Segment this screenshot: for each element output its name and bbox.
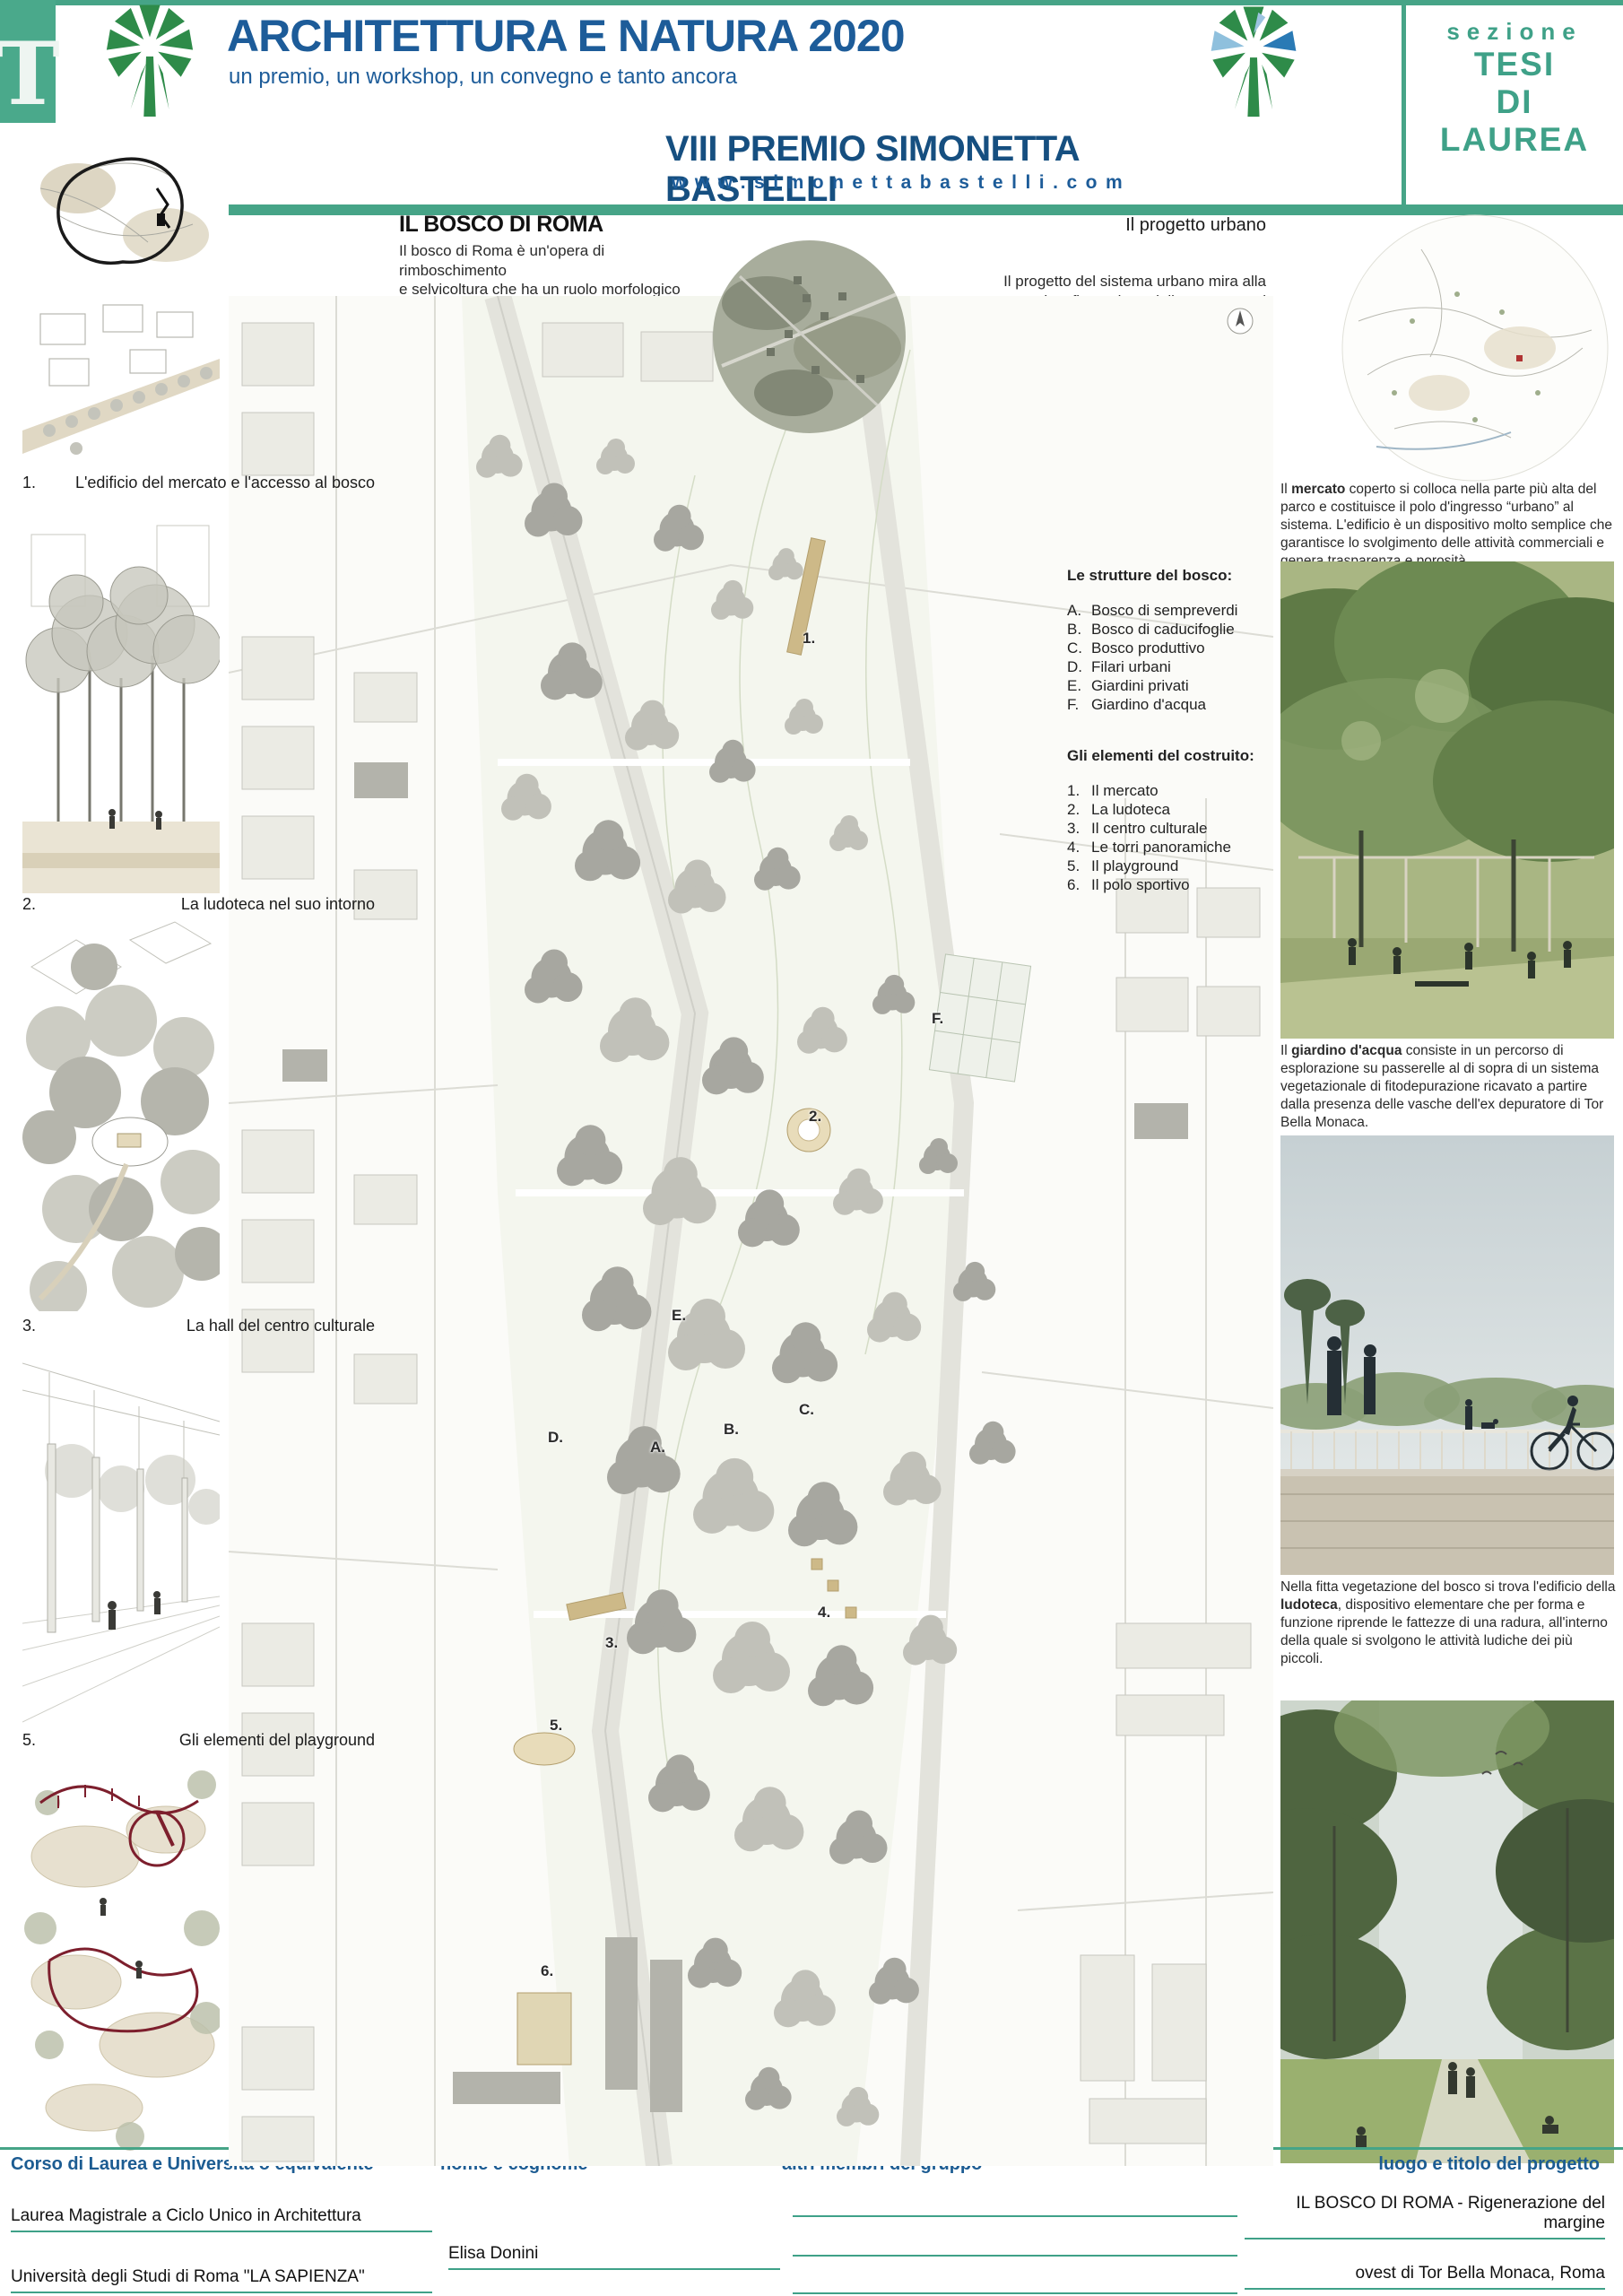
footer-project-line1: IL BOSCO DI ROMA - Rigenerazione del mar… xyxy=(1245,2194,1605,2239)
section-line-2: DI xyxy=(1406,83,1623,121)
legend-item: A.Bosco di sempreverdi xyxy=(1067,601,1273,620)
ludoteca-caption: Nella fitta vegetazione del bosco si tro… xyxy=(1280,1578,1616,1668)
plan-marker-E: E. xyxy=(672,1307,686,1325)
rome-map-sketch xyxy=(22,135,220,289)
giardino-render xyxy=(1280,1135,1614,1575)
bosco-render xyxy=(1280,1700,1614,2163)
legend-item: 6.Il polo sportivo xyxy=(1067,875,1273,894)
plan-marker-A: A. xyxy=(650,1439,665,1457)
event-subtitle: un premio, un workshop, un convegno e ta… xyxy=(229,65,1036,90)
section-label: sezione xyxy=(1406,18,1623,46)
section-box: sezione TESI DI LAUREA xyxy=(1402,0,1623,204)
mercato-caption: Il mercato coperto si colloca nella part… xyxy=(1280,481,1616,570)
aerial-photo-inset xyxy=(713,240,906,433)
legend-item: 4.Le torri panoramiche xyxy=(1067,838,1273,857)
legend-item: F.Giardino d'acqua xyxy=(1067,695,1273,714)
website-link: www.simonettabastelli.com xyxy=(672,172,1131,194)
legend-item: 3.Il centro culturale xyxy=(1067,819,1273,838)
legend-item: D.Filari urbani xyxy=(1067,657,1273,676)
panel-title: Gli elementi del playground xyxy=(179,1731,375,1754)
plan-marker-2: 2. xyxy=(809,1108,821,1126)
panel-number: 5. xyxy=(22,1731,36,1754)
panel-label-2: 2. La ludoteca nel suo intorno xyxy=(22,895,375,918)
plan-marker-D: D. xyxy=(548,1429,563,1447)
playground-illustration xyxy=(22,1749,220,2163)
ludoteca-illustration xyxy=(22,913,220,1311)
panel-title: La hall del centro culturale xyxy=(187,1317,375,1340)
panel-label-1: 1. L'edificio del mercato e l'accesso al… xyxy=(22,474,375,497)
footer-members-blank-line xyxy=(793,2292,1237,2294)
plan-marker-C: C. xyxy=(799,1401,814,1419)
panel-number: 1. xyxy=(22,474,36,497)
market-access-illustration xyxy=(22,499,220,893)
top-rule xyxy=(0,0,1623,5)
footer-university-value: Università degli Studi di Roma "LA SAPIE… xyxy=(11,2267,432,2293)
footer-course-value: Laurea Magistrale a Ciclo Unico in Archi… xyxy=(11,2206,432,2232)
legend-costruito-title: Gli elementi del costruito: xyxy=(1067,747,1273,765)
plan-marker-1: 1. xyxy=(803,630,815,648)
panel-label-3: 3. La hall del centro culturale xyxy=(22,1317,375,1340)
plan-marker-5: 5. xyxy=(550,1717,562,1735)
section-tab-letter: T xyxy=(0,31,60,117)
legend-bosco-title: Le strutture del bosco: xyxy=(1067,567,1273,585)
plan-marker-3: 3. xyxy=(605,1634,618,1652)
panel-title: La ludoteca nel suo intorno xyxy=(181,895,375,918)
legend-item: E.Giardini privati xyxy=(1067,676,1273,695)
urban-fabric-sketch xyxy=(22,296,220,468)
intro-title: IL BOSCO DI ROMA xyxy=(399,212,688,238)
tree-mosaic-icon xyxy=(82,4,217,124)
plan-marker-6: 6. xyxy=(541,1962,553,1980)
panel-number: 3. xyxy=(22,1317,36,1340)
thesis-poster: T ARCHITETTURA E NATURA 2020 un premio, … xyxy=(0,0,1623,2296)
panel-label-5: 5. Gli elementi del playground xyxy=(22,1731,375,1754)
section-line-1: TESI xyxy=(1406,46,1623,83)
footer-header-project: luogo e titolo del progetto xyxy=(1378,2154,1600,2175)
footer-project-line2: ovest di Tor Bella Monaca, Roma xyxy=(1245,2264,1605,2290)
footer-name-value: Elisa Donini xyxy=(448,2244,780,2270)
legend-item: C.Bosco produttivo xyxy=(1067,639,1273,657)
legend-item: 5.Il playground xyxy=(1067,857,1273,875)
plan-marker-4: 4. xyxy=(818,1604,830,1622)
panel-title: L'edificio del mercato e l'accesso al bo… xyxy=(75,474,375,497)
plan-marker-F: F. xyxy=(932,1010,943,1028)
footer-members-blank-line xyxy=(793,2255,1237,2257)
mercato-render xyxy=(1280,561,1614,1039)
plan-marker-B: B. xyxy=(724,1421,739,1439)
footer-members-blank-line xyxy=(793,2215,1237,2217)
tree-logo2-icon xyxy=(1194,4,1313,126)
tree-logo-icon xyxy=(82,4,217,124)
panel-number: 2. xyxy=(22,895,36,918)
plan-legend: Le strutture del bosco: A.Bosco di sempr… xyxy=(1067,567,1273,894)
legend-item: 2.La ludoteca xyxy=(1067,800,1273,819)
urban-title: Il progetto urbano xyxy=(976,215,1266,236)
section-tab: T xyxy=(0,0,56,123)
territorial-map-inset xyxy=(1341,213,1610,483)
legend-item: 1.Il mercato xyxy=(1067,781,1273,800)
tree-mosaic-blue-icon xyxy=(1194,4,1313,126)
prize-title: VIII PREMIO SIMONETTA BASTELLI xyxy=(665,129,1203,210)
hall-illustration xyxy=(22,1336,220,1729)
giardino-caption: Il giardino d'acqua consiste in un perco… xyxy=(1280,1042,1616,1132)
event-title: ARCHITETTURA E NATURA 2020 xyxy=(227,13,1034,60)
legend-item: B.Bosco di caducifoglie xyxy=(1067,620,1273,639)
section-line-3: LAUREA xyxy=(1406,121,1623,159)
